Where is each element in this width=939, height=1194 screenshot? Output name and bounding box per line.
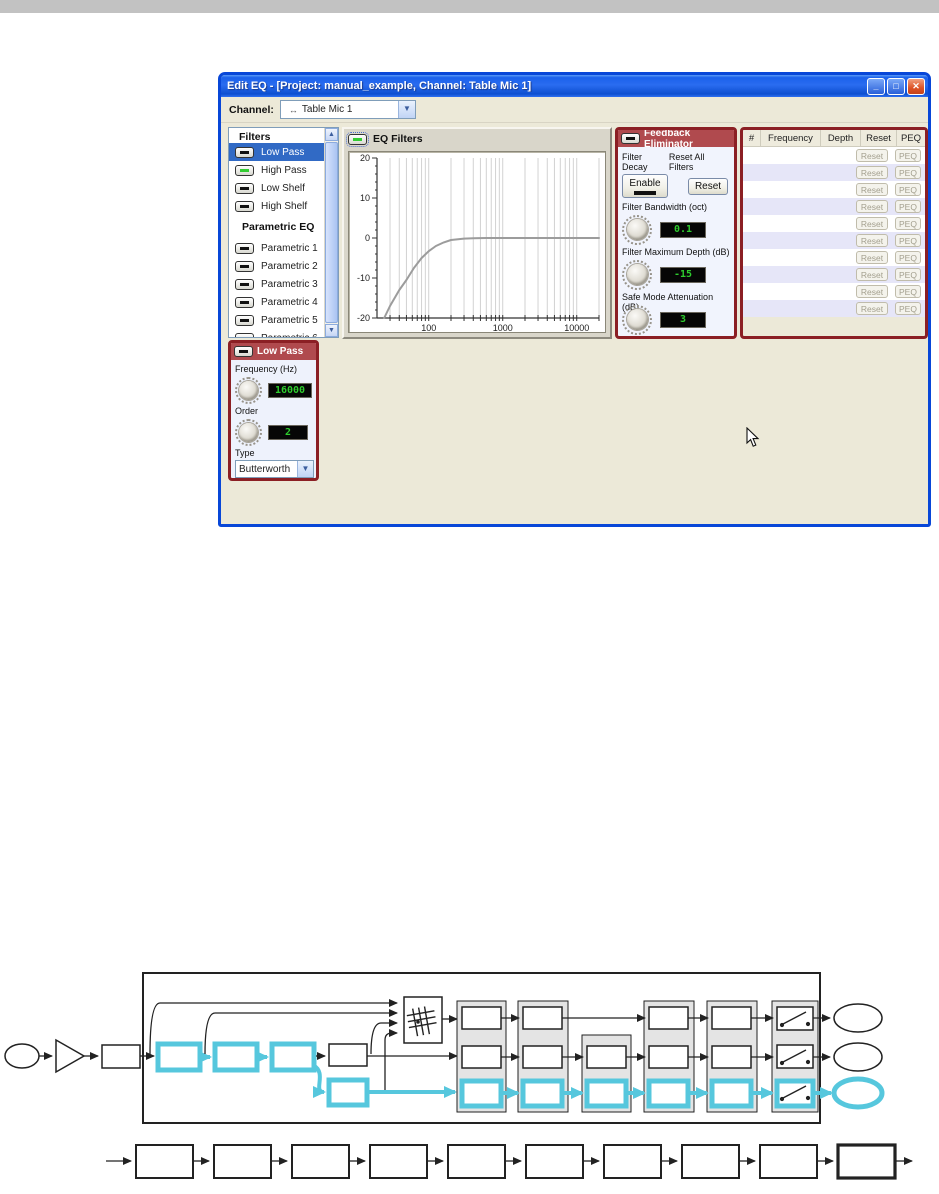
type-select[interactable]: Butterworth ▼ <box>235 460 314 478</box>
row-reset-button[interactable]: Reset <box>856 251 888 264</box>
low-pass-title: Low Pass <box>257 346 303 357</box>
table-row: ResetPEQ <box>743 164 925 181</box>
svg-text:10: 10 <box>360 193 370 203</box>
filter-item-high-pass[interactable]: High Pass <box>229 161 325 179</box>
row-reset-button[interactable]: Reset <box>856 149 888 162</box>
parametric-eq-header: Parametric EQ <box>229 215 325 239</box>
eq-filters-toggle-icon[interactable] <box>348 134 367 145</box>
chain-block-1 <box>136 1145 193 1178</box>
filters-scrollbar[interactable]: ▲ ▼ <box>324 128 338 337</box>
eq-block-4 <box>329 1080 367 1105</box>
scrollbar-thumb[interactable] <box>325 142 338 323</box>
order-label: Order <box>235 406 312 417</box>
minimize-button[interactable]: _ <box>867 78 885 95</box>
filter-bandwidth-knob[interactable] <box>622 215 652 245</box>
safe-mode-attenuation-knob[interactable] <box>622 305 652 335</box>
filter-item-parametric-6[interactable]: Parametric 6 <box>229 329 325 337</box>
col-number: # <box>743 130 761 146</box>
eq-filters-title: EQ Filters <box>373 133 423 145</box>
chain-block-10-active <box>838 1145 895 1178</box>
processing-chain-diagram <box>0 1135 939 1194</box>
row-reset-button[interactable]: Reset <box>856 268 888 281</box>
filter-bandwidth-label: Filter Bandwidth (oct) <box>622 202 730 213</box>
page: { "page": { "top_bar_color": "#c2c2c2" }… <box>0 0 939 1194</box>
enable-led-indicator <box>634 191 656 195</box>
filter-decay-enable-button[interactable]: Enable <box>622 174 668 198</box>
reset-all-filters-label: Reset All Filters <box>669 152 730 172</box>
table-row: ResetPEQ <box>743 215 925 232</box>
filter-toggle-icon[interactable] <box>235 315 254 326</box>
chain-block-9 <box>760 1145 817 1178</box>
svg-text:100: 100 <box>421 323 436 333</box>
chevron-down-icon[interactable]: ▼ <box>398 101 415 118</box>
matrix-block <box>404 997 442 1043</box>
filters-header: Filters <box>229 128 325 143</box>
filters-list-panel: Filters Low Pass High Pass Low Shelf Hig… <box>228 127 339 338</box>
row-reset-button[interactable]: Reset <box>856 166 888 179</box>
row-peq-button[interactable]: PEQ <box>895 268 921 281</box>
low-pass-panel: Low Pass Frequency (Hz) 16000 Order 2 Ty… <box>228 340 319 481</box>
table-row: ResetPEQ <box>743 147 925 164</box>
svg-text:20: 20 <box>360 153 370 163</box>
chain-block-2 <box>214 1145 271 1178</box>
row-reset-button[interactable]: Reset <box>856 302 888 315</box>
filter-toggle-icon[interactable] <box>235 297 254 308</box>
filter-item-parametric-2[interactable]: Parametric 2 <box>229 257 325 275</box>
filter-item-low-shelf[interactable]: Low Shelf <box>229 179 325 197</box>
table-row: ResetPEQ <box>743 198 925 215</box>
row-peq-button[interactable]: PEQ <box>895 285 921 298</box>
row-peq-button[interactable]: PEQ <box>895 166 921 179</box>
row-peq-button[interactable]: PEQ <box>895 217 921 230</box>
col-peq: PEQ <box>897 130 925 146</box>
eq-block-1 <box>158 1044 200 1070</box>
feedback-toggle-icon[interactable] <box>621 133 640 144</box>
filter-max-depth-label: Filter Maximum Depth (dB) <box>622 247 730 258</box>
svg-text:1000: 1000 <box>493 323 513 333</box>
table-header-row: # Frequency Depth Reset PEQ <box>743 130 925 147</box>
row-reset-button[interactable]: Reset <box>856 285 888 298</box>
frequency-knob[interactable] <box>235 377 262 404</box>
eq-response-plot: 20100-10-20100100010000 <box>348 151 606 333</box>
filter-max-depth-knob[interactable] <box>622 260 652 290</box>
filter-toggle-icon[interactable] <box>235 261 254 272</box>
chain-block-3 <box>292 1145 349 1178</box>
filter-decay-label: Filter Decay <box>622 152 669 172</box>
eq-filters-graph-panel: EQ Filters 20100-10-20100100010000 <box>342 127 612 339</box>
titlebar[interactable]: Edit EQ - [Project: manual_example, Chan… <box>221 75 928 97</box>
row-reset-button[interactable]: Reset <box>856 183 888 196</box>
filter-item-high-shelf[interactable]: High Shelf <box>229 197 325 215</box>
row-peq-button[interactable]: PEQ <box>895 251 921 264</box>
filter-toggle-icon[interactable] <box>235 147 254 158</box>
table-row: ResetPEQ <box>743 232 925 249</box>
low-pass-toggle-icon[interactable] <box>234 346 253 357</box>
signal-flow-diagram <box>0 965 939 1137</box>
type-label: Type <box>235 448 312 459</box>
filter-toggle-icon[interactable] <box>235 243 254 254</box>
output-ellipse-highlighted <box>834 1079 882 1107</box>
row-reset-button[interactable]: Reset <box>856 234 888 247</box>
row-reset-button[interactable]: Reset <box>856 217 888 230</box>
filter-item-parametric-5[interactable]: Parametric 5 <box>229 311 325 329</box>
chevron-down-icon[interactable]: ▼ <box>297 461 313 477</box>
channel-label: Channel: <box>229 104 274 116</box>
col-reset: Reset <box>861 130 897 146</box>
maximize-button[interactable]: □ <box>887 78 905 95</box>
feedback-eliminator-panel: Feedback Eliminator Filter Decay Reset A… <box>615 127 737 339</box>
filter-toggle-icon[interactable] <box>235 201 254 212</box>
output-switch-blocks <box>777 1007 813 1106</box>
feedback-title: Feedback Eliminator <box>644 128 731 150</box>
table-row: ResetPEQ <box>743 181 925 198</box>
row-peq-button[interactable]: PEQ <box>895 183 921 196</box>
channel-select[interactable]: ↔ Table Mic 1 ▼ <box>280 100 416 119</box>
output-ellipse-1 <box>834 1004 882 1032</box>
feedback-filters-table: # Frequency Depth Reset PEQ ResetPEQ Res… <box>740 127 928 339</box>
frequency-display: 16000 <box>268 383 312 398</box>
channel-toolbar: Channel: ↔ Table Mic 1 ▼ <box>221 97 928 123</box>
eq-block-3 <box>272 1044 314 1070</box>
page-top-bar <box>0 0 939 13</box>
chain-block-8 <box>682 1145 739 1178</box>
svg-text:-20: -20 <box>357 313 370 323</box>
filter-item-parametric-1[interactable]: Parametric 1 <box>229 239 325 257</box>
filter-bandwidth-display: 0.1 <box>660 222 706 238</box>
frequency-label: Frequency (Hz) <box>235 364 312 375</box>
chain-block-4 <box>370 1145 427 1178</box>
mouse-cursor <box>746 427 760 448</box>
filter-toggle-icon[interactable] <box>235 333 254 338</box>
table-row: ResetPEQ <box>743 300 925 317</box>
filter-item-low-pass[interactable]: Low Pass <box>229 143 325 161</box>
scroll-up-icon[interactable]: ▲ <box>325 128 338 141</box>
col-frequency: Frequency <box>761 130 821 146</box>
filter-toggle-icon[interactable] <box>235 183 254 194</box>
close-button[interactable]: ✕ <box>907 78 925 95</box>
type-value: Butterworth <box>236 464 297 475</box>
svg-text:-10: -10 <box>357 273 370 283</box>
safe-mode-attenuation-label: Safe Mode Attenuation (dB) <box>622 292 730 303</box>
scroll-down-icon[interactable]: ▼ <box>325 324 338 337</box>
table-row: ResetPEQ <box>743 249 925 266</box>
safe-mode-attenuation-display: 3 <box>660 312 706 328</box>
row-reset-button[interactable]: Reset <box>856 200 888 213</box>
row-peq-button[interactable]: PEQ <box>895 302 921 315</box>
row-peq-button[interactable]: PEQ <box>895 234 921 247</box>
filter-item-parametric-4[interactable]: Parametric 4 <box>229 293 325 311</box>
input-source-ellipse <box>5 1044 39 1068</box>
col-depth: Depth <box>821 130 861 146</box>
order-knob[interactable] <box>235 419 262 446</box>
filter-toggle-icon[interactable] <box>235 165 254 176</box>
input-block <box>102 1045 140 1068</box>
table-row: ResetPEQ <box>743 283 925 300</box>
reset-all-filters-button[interactable]: Reset <box>688 178 728 195</box>
chain-block-7 <box>604 1145 661 1178</box>
level-block <box>329 1044 367 1066</box>
row-peq-button[interactable]: PEQ <box>895 149 921 162</box>
channel-type-icon: ↔ <box>289 105 298 115</box>
window-title: Edit EQ - [Project: manual_example, Chan… <box>227 80 867 92</box>
gain-triangle <box>56 1040 84 1072</box>
filter-item-parametric-3[interactable]: Parametric 3 <box>229 275 325 293</box>
filter-max-depth-display: -15 <box>660 267 706 283</box>
channel-value: Table Mic 1 <box>302 104 398 115</box>
svg-text:0: 0 <box>365 233 370 243</box>
row-peq-button[interactable]: PEQ <box>895 200 921 213</box>
eq-block-2 <box>215 1044 257 1070</box>
edit-eq-window: Edit EQ - [Project: manual_example, Chan… <box>218 72 931 527</box>
output-ellipse-2 <box>834 1043 882 1071</box>
filter-toggle-icon[interactable] <box>235 279 254 290</box>
table-row: ResetPEQ <box>743 266 925 283</box>
order-display: 2 <box>268 425 308 440</box>
svg-text:10000: 10000 <box>564 323 589 333</box>
chain-block-6 <box>526 1145 583 1178</box>
chain-block-5 <box>448 1145 505 1178</box>
